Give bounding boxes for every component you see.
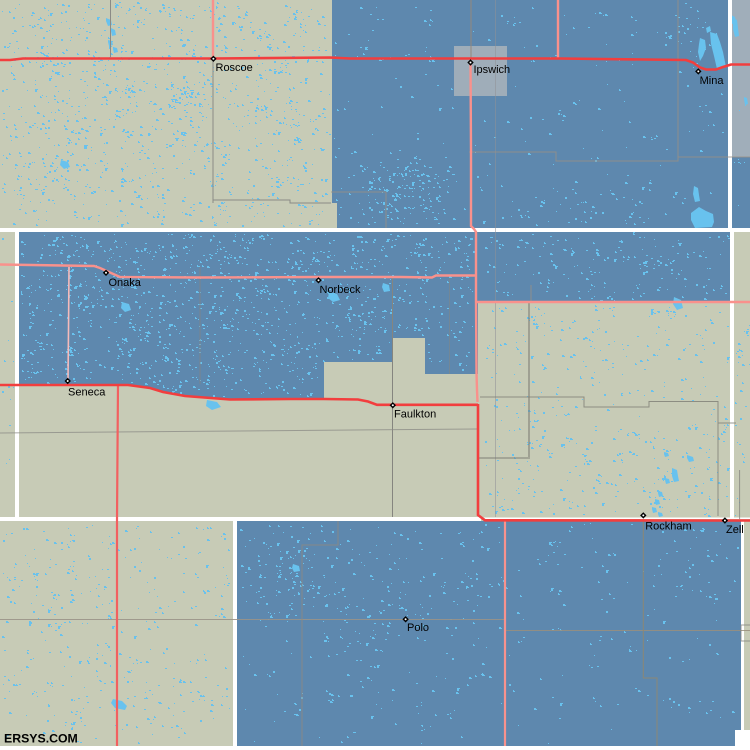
svg-text:Norbeck: Norbeck (320, 284, 361, 296)
svg-text:Seneca: Seneca (68, 387, 106, 399)
svg-text:Ipswich: Ipswich (474, 64, 511, 76)
svg-text:Zell: Zell (726, 524, 744, 536)
svg-text:Onaka: Onaka (109, 277, 142, 289)
svg-text:Polo: Polo (407, 622, 429, 634)
svg-text:Rockham: Rockham (645, 521, 691, 533)
svg-text:ERSYS.COM: ERSYS.COM (4, 732, 78, 746)
svg-text:Roscoe: Roscoe (216, 62, 253, 74)
svg-text:Faulkton: Faulkton (394, 409, 436, 421)
svg-text:Mina: Mina (700, 75, 725, 87)
